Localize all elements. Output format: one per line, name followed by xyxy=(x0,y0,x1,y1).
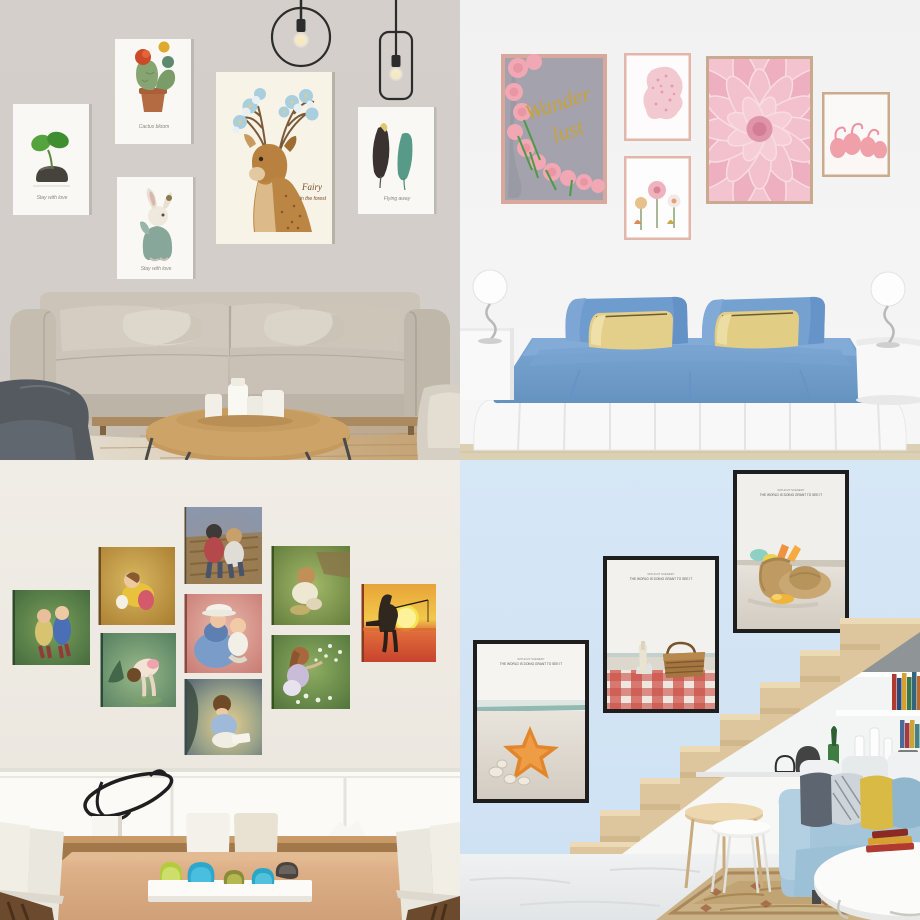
svg-text:in the forest: in the forest xyxy=(300,196,327,202)
svg-text:Stay with love: Stay with love xyxy=(141,266,172,272)
svg-text:Cactus bloom: Cactus bloom xyxy=(139,124,170,130)
svg-text:Fairy: Fairy xyxy=(301,182,322,192)
svg-text:Stay with love: Stay with love xyxy=(37,195,68,201)
svg-text:THE WORLD IS DOING GRANT TO SE: THE WORLD IS DOING GRANT TO SEE IT xyxy=(500,662,563,666)
svg-text:THE WORLD IS DOING GRANT TO SE: THE WORLD IS DOING GRANT TO SEE IT xyxy=(760,493,823,497)
svg-text:WITHOUT SCENERY: WITHOUT SCENERY xyxy=(517,657,544,661)
svg-text:Flying away: Flying away xyxy=(384,196,411,202)
svg-text:WITHOUT SCENERY: WITHOUT SCENERY xyxy=(647,572,674,576)
svg-text:WITHOUT SCENERY: WITHOUT SCENERY xyxy=(777,488,804,492)
svg-text:THE WORLD IS DOING GRANT TO SE: THE WORLD IS DOING GRANT TO SEE IT xyxy=(630,577,693,581)
